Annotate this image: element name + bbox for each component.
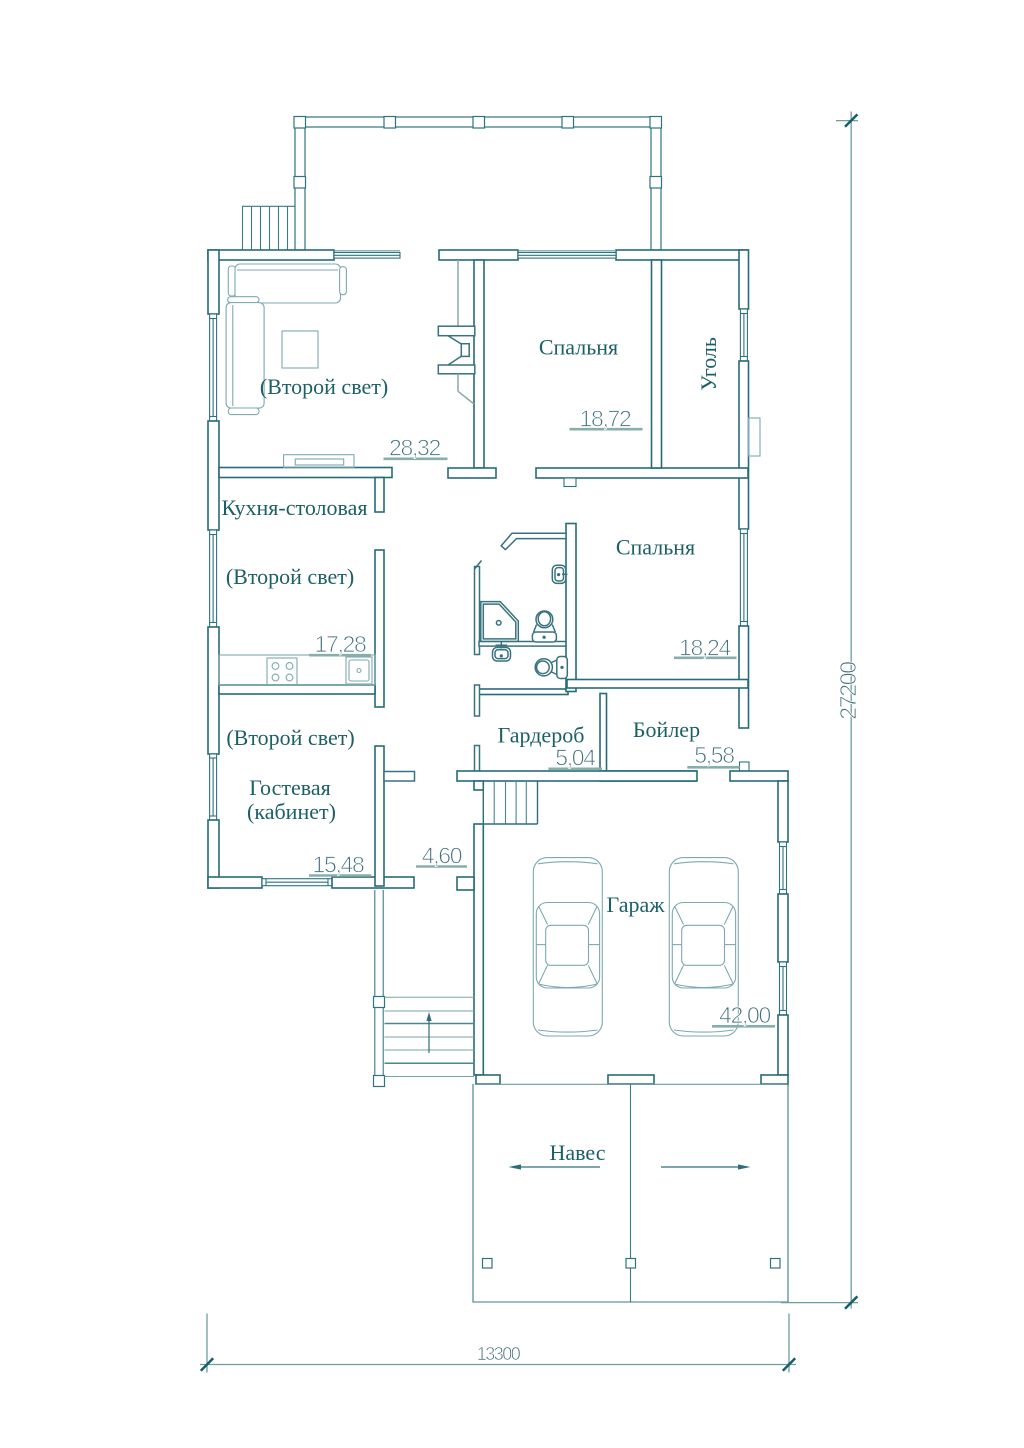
- svg-text:(Второй свет): (Второй свет): [260, 374, 388, 399]
- svg-text:28,32: 28,32: [389, 435, 441, 461]
- svg-text:5,58: 5,58: [694, 742, 734, 768]
- svg-text:Кухня-столовая: Кухня-столовая: [222, 495, 368, 520]
- svg-text:4,60: 4,60: [422, 843, 462, 869]
- svg-text:(Второй свет): (Второй свет): [226, 564, 354, 589]
- svg-text:17,28: 17,28: [314, 631, 366, 657]
- svg-text:27200: 27200: [835, 662, 861, 720]
- svg-text:Навес: Навес: [550, 1140, 606, 1165]
- svg-text:18,24: 18,24: [679, 635, 732, 661]
- svg-text:Спальня: Спальня: [539, 335, 618, 360]
- svg-text:Гараж: Гараж: [607, 892, 666, 917]
- svg-text:Уголь: Уголь: [696, 337, 721, 391]
- svg-text:Гостевая: Гостевая: [249, 775, 330, 800]
- svg-text:Бойлер: Бойлер: [633, 717, 700, 742]
- svg-text:18,72: 18,72: [579, 406, 631, 432]
- svg-text:(Второй свет): (Второй свет): [226, 725, 354, 750]
- svg-text:42,00: 42,00: [719, 1002, 771, 1028]
- svg-text:13300: 13300: [477, 1344, 521, 1364]
- svg-text:15,48: 15,48: [312, 852, 364, 878]
- svg-text:(кабинет): (кабинет): [247, 799, 336, 824]
- svg-text:5,04: 5,04: [555, 745, 596, 771]
- svg-text:Спальня: Спальня: [616, 535, 695, 560]
